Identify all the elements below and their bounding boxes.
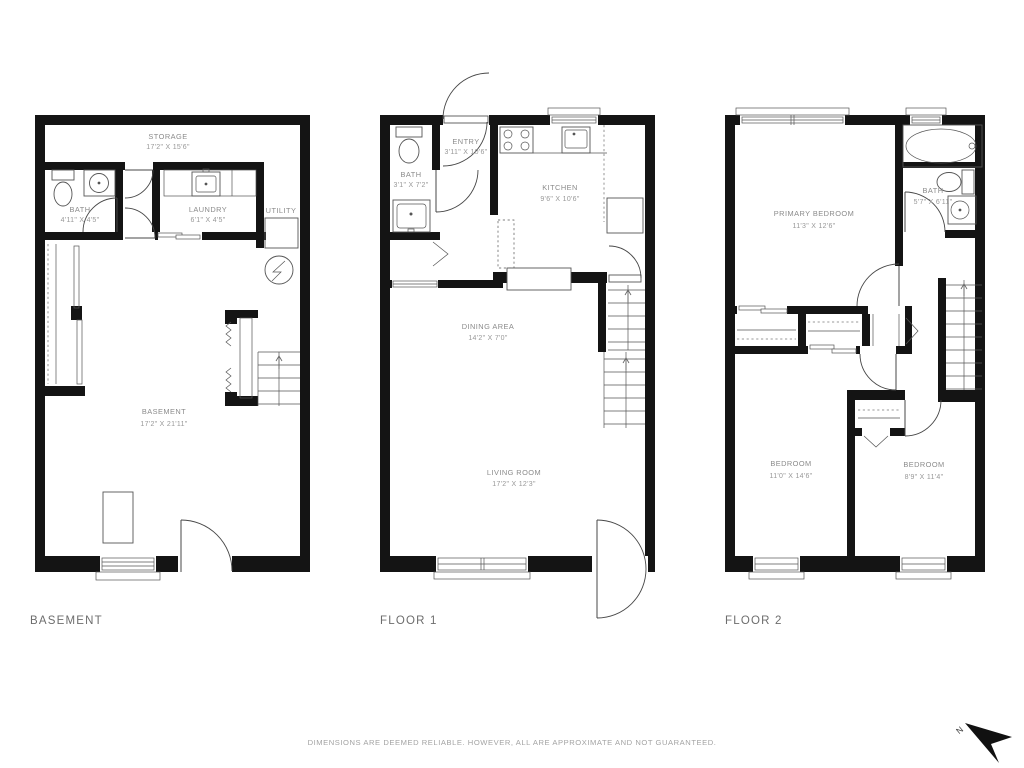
floor1-stairs-upper — [608, 285, 645, 350]
kitchen-sink-icon — [562, 127, 590, 153]
room-dims-primary-bedroom: 11'3" X 12'6" — [793, 223, 836, 230]
bathtub-icon — [903, 125, 982, 167]
sink-icon — [84, 170, 115, 196]
sink-icon — [393, 200, 430, 232]
bath-door-arc — [436, 170, 478, 212]
floor1-floor-label: FLOOR 1 — [380, 615, 438, 627]
room-dims-bath: 5'7" X 6'11" — [914, 199, 953, 206]
room-label-bath: BATH — [70, 205, 91, 214]
floor1-stairs-lower — [604, 352, 645, 428]
basement-walls — [35, 115, 310, 572]
understairs-closet — [226, 318, 252, 398]
room-label-kitchen: KITCHEN — [542, 183, 578, 192]
basement-plan: STORAGE 17'2" X 15'6" BATH 4'11" X 4'5" … — [30, 115, 310, 627]
primary-bedroom-door-arc — [857, 264, 899, 306]
bath-door-arc — [905, 192, 945, 232]
basement-furniture — [103, 492, 133, 543]
basement-stairs — [258, 352, 300, 406]
basement-floor-label: BASEMENT — [30, 615, 103, 627]
room-dims-dining: 14'2" X 7'0" — [468, 335, 507, 342]
room-dims-laundry: 6'1" X 4'5" — [190, 217, 225, 224]
floor2-walls — [725, 115, 985, 572]
room-dims-storage: 17'2" X 15'6" — [146, 144, 190, 151]
room-label-bedroom-right: BEDROOM — [903, 460, 944, 469]
floor1-room-labels: ENTRY 3'11" X 10'6" BATH 3'1" X 7'2" KIT… — [393, 137, 579, 488]
vestibule-door-arcs — [125, 170, 155, 238]
room-label-bedroom-left: BEDROOM — [770, 459, 811, 468]
floorplan-sheet: STORAGE 17'2" X 15'6" BATH 4'11" X 4'5" … — [0, 0, 1024, 768]
toilet-icon — [396, 127, 422, 163]
floor2-floor-label: FLOOR 2 — [725, 615, 783, 627]
room-dims-bath: 3'1" X 7'2" — [393, 182, 428, 189]
bedroom-right-door-arc — [905, 400, 941, 436]
stove-icon — [500, 127, 533, 153]
laundry-sink-icon — [164, 169, 256, 196]
pass-through-counter — [507, 268, 571, 290]
electrical-panel-icon — [265, 256, 293, 284]
disclaimer-text: DIMENSIONS ARE DEEMED RELIABLE. HOWEVER,… — [308, 738, 717, 747]
room-dims-entry: 3'11" X 10'6" — [445, 149, 488, 156]
room-dims-basement: 17'2" X 21'11" — [140, 421, 187, 428]
room-label-bath: BATH — [923, 186, 944, 195]
utility-shelf — [265, 218, 298, 248]
room-label-entry: ENTRY — [452, 137, 479, 146]
bath-door-arc — [83, 198, 117, 232]
room-dims-living: 17'2" X 12'3" — [492, 481, 536, 488]
toilet-icon — [52, 170, 74, 206]
floor1-plan: ENTRY 3'11" X 10'6" BATH 3'1" X 7'2" KIT… — [380, 73, 655, 627]
room-label-basement: BASEMENT — [142, 407, 186, 416]
north-label: N — [954, 724, 965, 736]
north-arrow-icon: N — [954, 723, 1012, 763]
room-dims-kitchen: 9'6" X 10'6" — [540, 196, 579, 203]
room-label-laundry: LAUNDRY — [189, 205, 227, 214]
fridge-icon — [607, 198, 643, 233]
room-label-primary-bedroom: PRIMARY BEDROOM — [774, 209, 854, 218]
floor1-openings — [392, 115, 648, 572]
floorplan-canvas: STORAGE 17'2" X 15'6" BATH 4'11" X 4'5" … — [0, 0, 1024, 768]
room-label-storage: STORAGE — [148, 132, 187, 141]
room-label-utility: UTILITY — [266, 206, 297, 215]
room-dims-bedroom-right: 8'9" X 11'4" — [905, 474, 944, 481]
floor2-openings — [737, 115, 947, 572]
floor2-plan: PRIMARY BEDROOM 11'3" X 12'6" BATH 5'7" … — [725, 108, 985, 627]
room-label-dining: DINING AREA — [462, 322, 515, 331]
room-dims-bath: 4'11" X 4'5" — [61, 217, 100, 224]
stair-door-arc — [609, 246, 641, 282]
room-label-bath: BATH — [401, 170, 422, 179]
bedroom-left-door-arc — [860, 354, 896, 390]
room-dims-bedroom-left: 11'0" X 14'6" — [770, 473, 813, 480]
room-label-living: LIVING ROOM — [487, 468, 541, 477]
